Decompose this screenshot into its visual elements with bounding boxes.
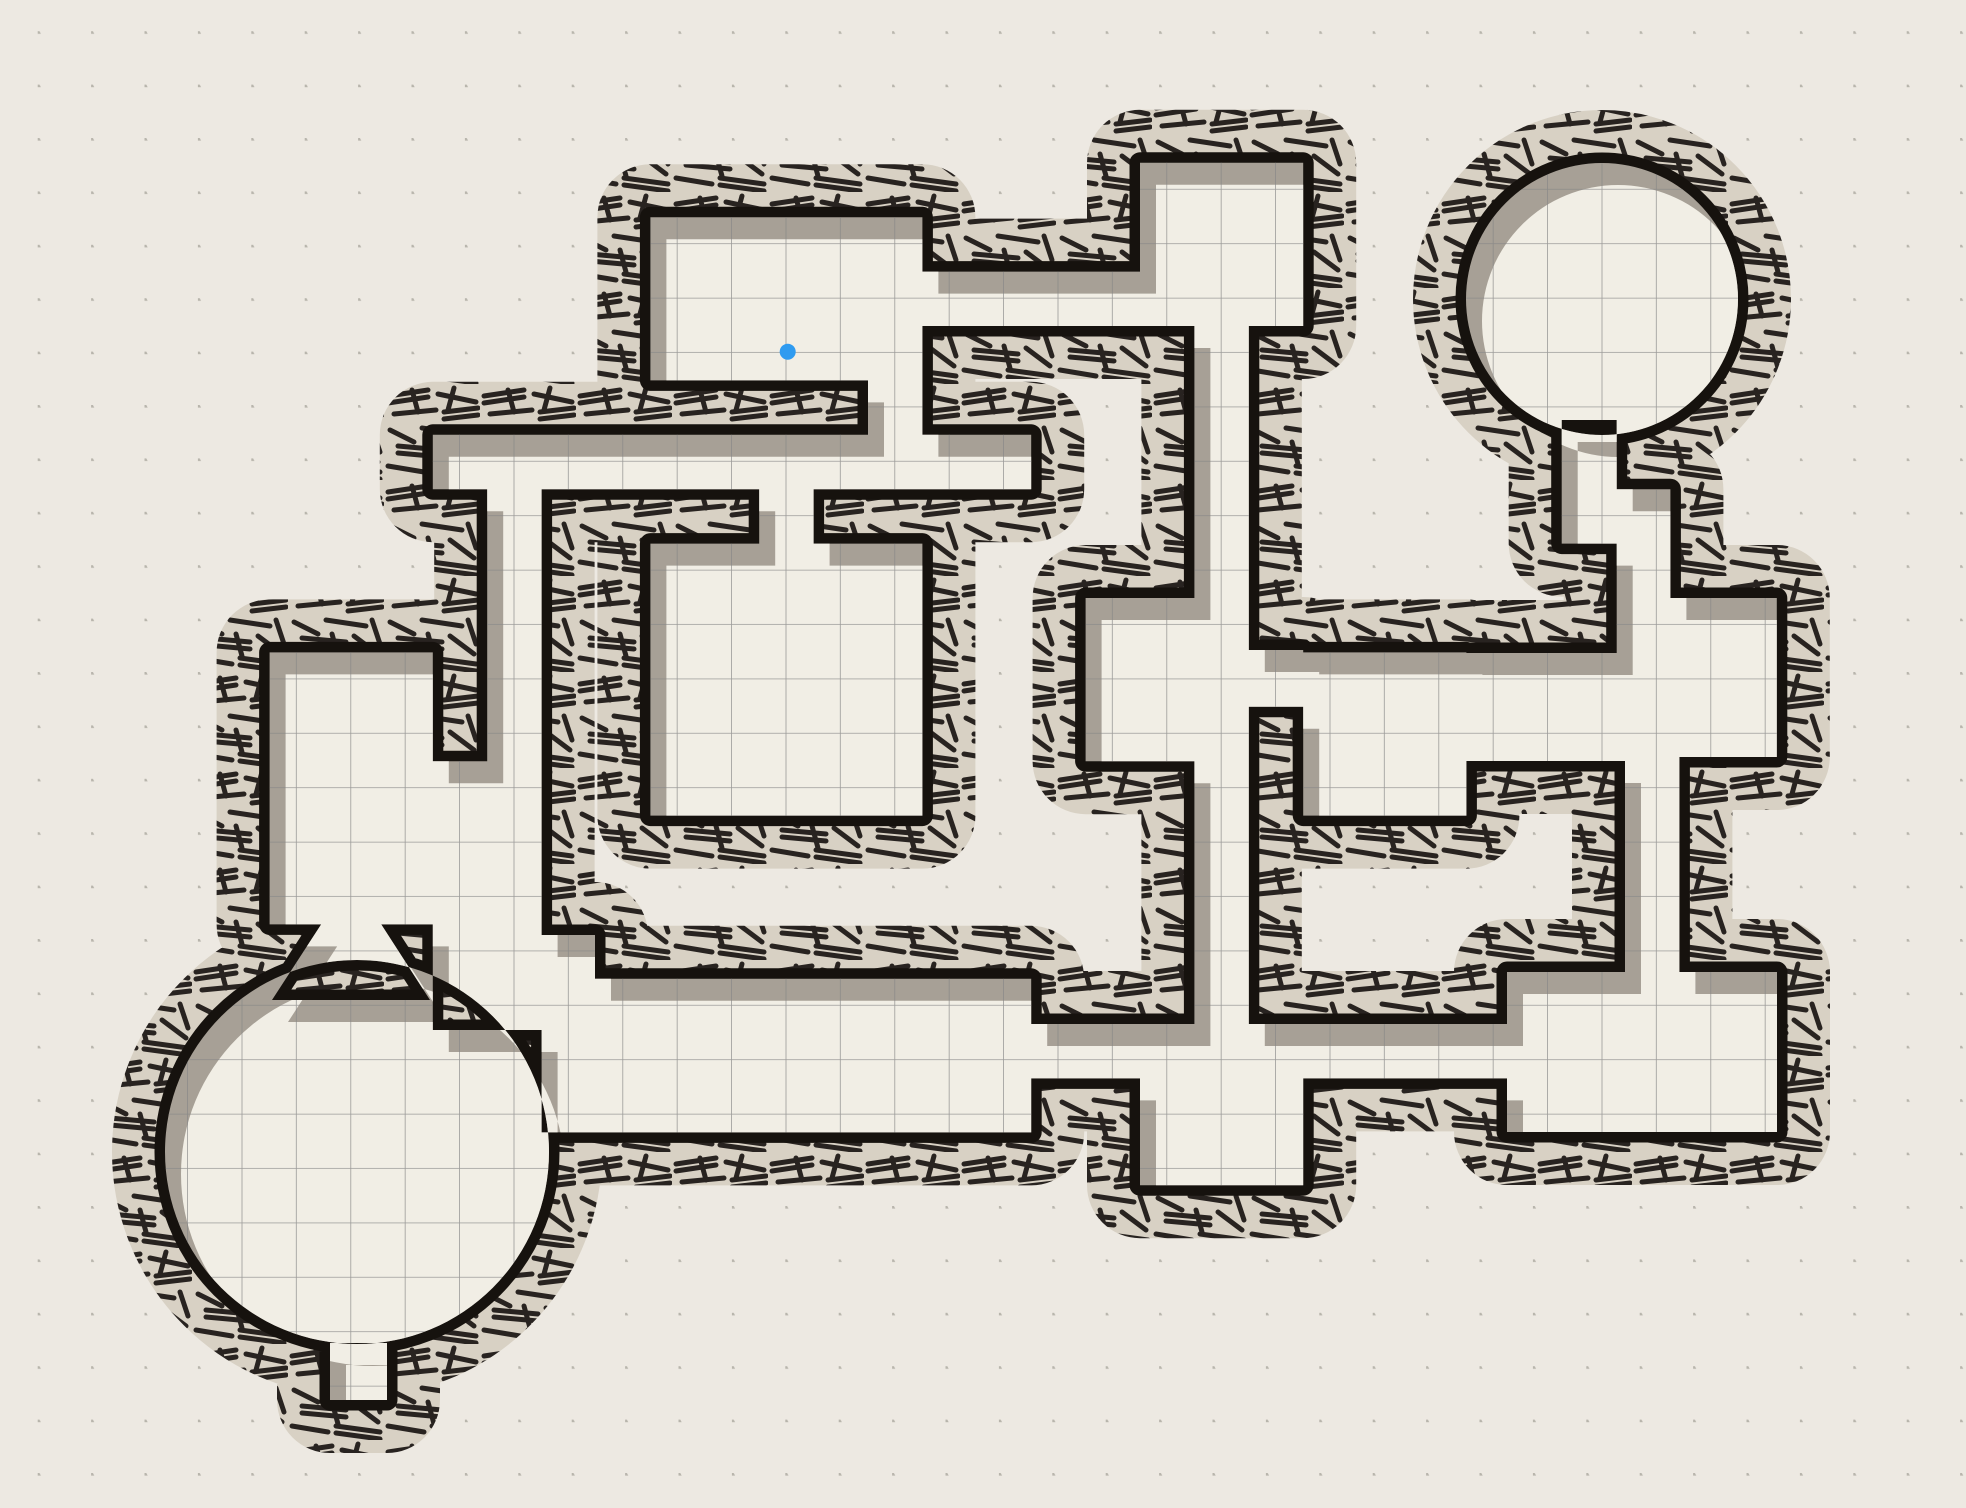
map-marker-dot[interactable] xyxy=(780,344,796,360)
dungeon-map-canvas[interactable] xyxy=(0,0,1966,1508)
dungeon-map-app xyxy=(0,0,1966,1508)
